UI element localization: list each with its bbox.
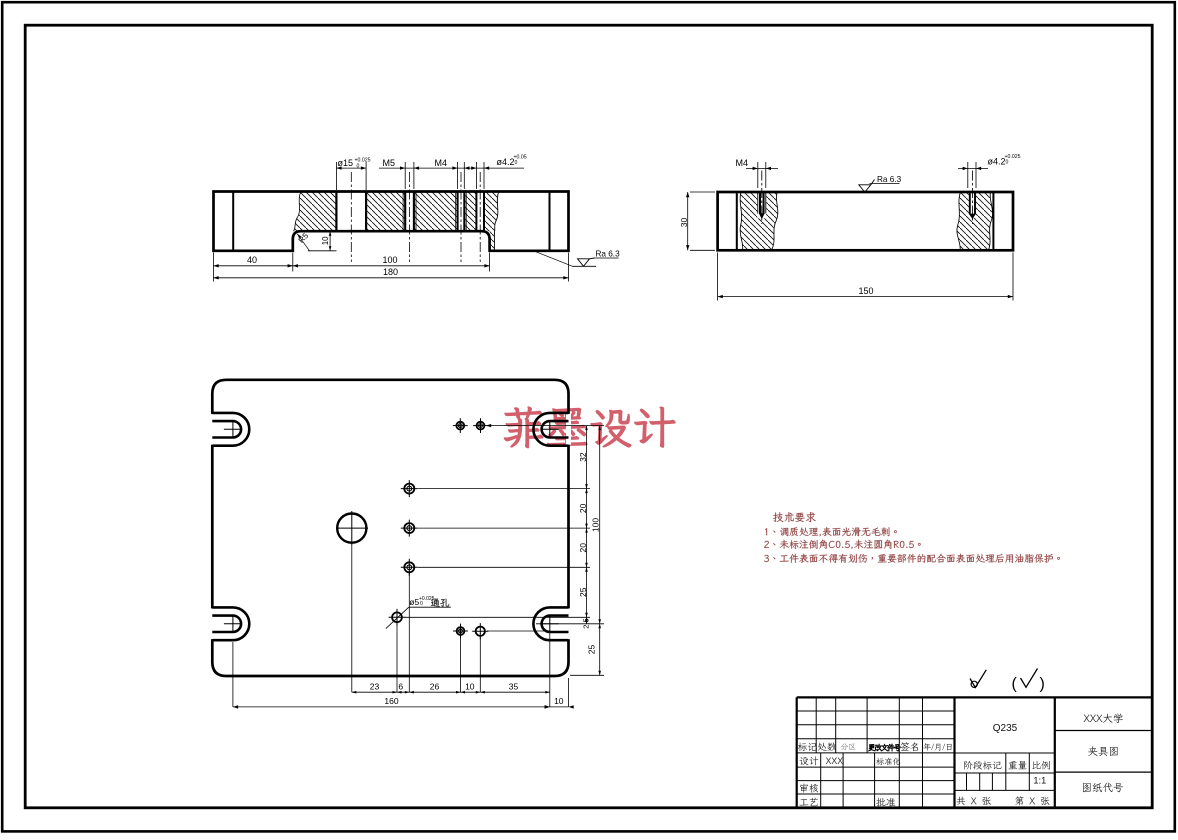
svg-text:0: 0 [420,601,423,607]
svg-text:25: 25 [578,587,588,597]
svg-text:20: 20 [578,503,588,513]
svg-text:35: 35 [509,681,519,691]
svg-text:100: 100 [382,255,397,265]
svg-text:6: 6 [398,681,403,691]
svg-text:160: 160 [384,696,398,706]
svg-text:20: 20 [578,543,588,553]
svg-text:(: ( [1012,676,1018,693]
svg-text:100: 100 [591,518,601,532]
svg-text:ø4.2: ø4.2 [988,156,1006,166]
svg-text:): ) [1040,676,1045,693]
svg-text:Ra 6.3: Ra 6.3 [596,250,621,259]
svg-text:10: 10 [465,681,475,691]
svg-text:Ra 6.3: Ra 6.3 [877,175,902,184]
svg-text:32: 32 [578,452,588,462]
svg-text:0: 0 [515,160,518,166]
svg-text:23: 23 [370,681,380,691]
svg-text:XXX: XXX [826,756,844,766]
svg-text:1:1: 1:1 [1033,775,1046,785]
svg-text:M5: M5 [383,158,396,168]
svg-text:M4: M4 [435,158,448,168]
svg-text:40: 40 [247,255,257,265]
svg-text:30: 30 [679,217,689,227]
svg-text:0: 0 [1006,160,1009,166]
svg-text:0: 0 [357,164,360,170]
svg-text:180: 180 [383,267,398,277]
svg-text:25: 25 [587,645,597,655]
svg-text:ø5: ø5 [409,597,419,607]
svg-text:26: 26 [430,681,440,691]
svg-text:2.5: 2.5 [581,618,590,628]
svg-text:M4: M4 [736,158,749,168]
svg-text:10: 10 [554,696,564,706]
svg-text:10: 10 [321,236,330,245]
svg-text:150: 150 [858,286,873,296]
svg-text:Q235: Q235 [993,723,1018,734]
svg-text:ø4.2: ø4.2 [497,157,515,167]
svg-text:ø15: ø15 [338,158,354,168]
